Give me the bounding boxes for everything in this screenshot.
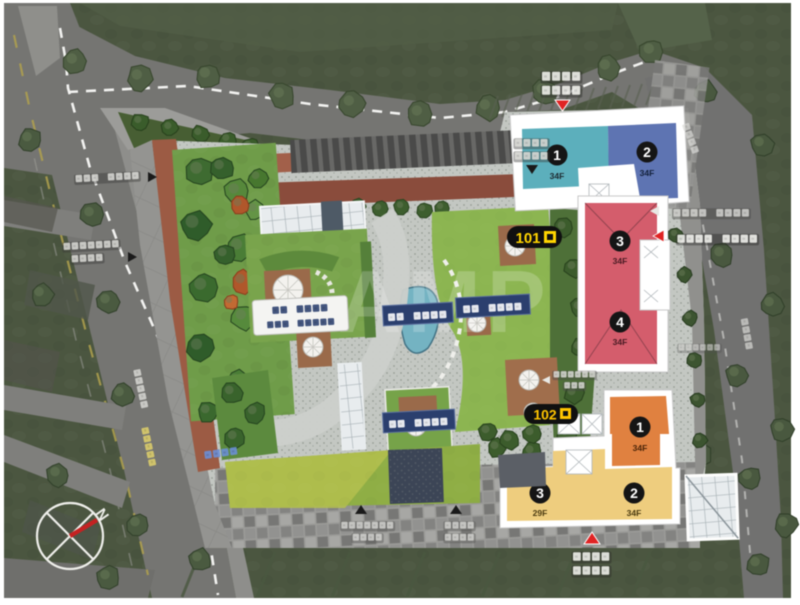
svg-text:3: 3 bbox=[536, 485, 544, 501]
svg-text:34F: 34F bbox=[550, 171, 565, 181]
svg-text:102: 102 bbox=[533, 407, 557, 423]
svg-text:34F: 34F bbox=[640, 168, 655, 178]
svg-text:4: 4 bbox=[616, 314, 624, 330]
svg-text:101: 101 bbox=[515, 230, 540, 247]
svg-text:34F: 34F bbox=[627, 508, 642, 518]
svg-text:29F: 29F bbox=[533, 508, 548, 518]
svg-text:34F: 34F bbox=[613, 256, 628, 266]
svg-text:34F: 34F bbox=[613, 337, 628, 347]
svg-text:34F: 34F bbox=[633, 443, 648, 453]
svg-text:3: 3 bbox=[616, 233, 624, 249]
svg-text:2: 2 bbox=[630, 485, 638, 501]
svg-text:1: 1 bbox=[553, 147, 561, 163]
svg-text:1: 1 bbox=[636, 419, 644, 435]
svg-text:2: 2 bbox=[643, 144, 651, 160]
